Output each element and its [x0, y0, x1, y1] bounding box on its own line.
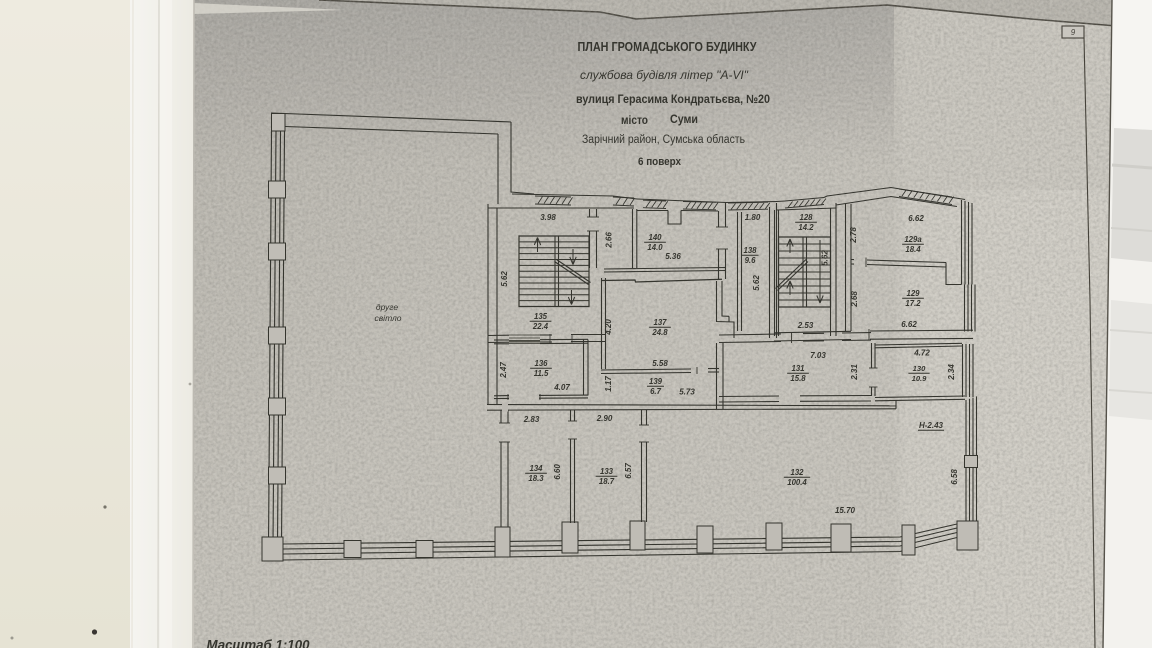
svg-text:2.68: 2.68 — [850, 291, 859, 308]
svg-text:24.8: 24.8 — [651, 328, 668, 337]
svg-text:22.4: 22.4 — [532, 322, 549, 331]
svg-text:133: 133 — [600, 467, 614, 476]
svg-text:100.4: 100.4 — [787, 478, 807, 487]
svg-text:Суми: Суми — [670, 112, 698, 126]
svg-text:5.73: 5.73 — [679, 388, 695, 397]
svg-text:139: 139 — [649, 377, 663, 386]
svg-text:1.80: 1.80 — [745, 213, 761, 222]
svg-text:службова будівля літер "А-VI": службова будівля літер "А-VI" — [580, 68, 749, 82]
svg-text:Зарічний район, Сумська област: Зарічний район, Сумська область — [582, 134, 745, 146]
svg-text:1.17: 1.17 — [604, 376, 613, 392]
svg-text:137: 137 — [653, 318, 667, 327]
svg-text:15.8: 15.8 — [790, 374, 806, 383]
svg-text:6.62: 6.62 — [901, 320, 917, 329]
svg-text:18.3: 18.3 — [528, 474, 544, 483]
svg-text:4.20: 4.20 — [604, 319, 613, 336]
svg-text:18.7: 18.7 — [599, 477, 615, 486]
svg-text:6.7: 6.7 — [650, 387, 662, 396]
svg-text:світло: світло — [375, 313, 402, 323]
svg-text:місто: місто — [621, 115, 648, 127]
svg-text:4.72: 4.72 — [913, 349, 930, 358]
svg-text:11.5: 11.5 — [534, 369, 549, 378]
svg-text:Масштаб 1:100: Масштаб 1:100 — [207, 638, 310, 648]
svg-text:5.36: 5.36 — [665, 252, 681, 261]
svg-text:4.07: 4.07 — [553, 383, 570, 392]
svg-text:136: 136 — [534, 359, 548, 368]
svg-text:вулиця Герасима Кондратьєва,: вулиця Герасима Кондратьєва, №20 — [576, 92, 770, 106]
svg-text:5.58: 5.58 — [652, 359, 668, 368]
svg-text:132: 132 — [790, 468, 804, 477]
svg-text:15.70: 15.70 — [835, 506, 856, 515]
svg-text:2.78: 2.78 — [849, 227, 858, 244]
svg-text:134: 134 — [529, 464, 543, 473]
svg-text:9: 9 — [1071, 28, 1076, 37]
svg-text:9.6: 9.6 — [745, 256, 757, 265]
svg-text:14.2: 14.2 — [798, 223, 814, 232]
svg-text:2.66: 2.66 — [605, 232, 614, 249]
svg-text:6.57: 6.57 — [624, 463, 633, 479]
svg-text:130: 130 — [913, 364, 926, 373]
svg-text:5.62: 5.62 — [752, 275, 761, 291]
svg-text:5.62: 5.62 — [821, 250, 830, 266]
svg-text:5.62: 5.62 — [500, 271, 509, 287]
svg-text:129: 129 — [906, 289, 920, 298]
svg-text:2.31: 2.31 — [850, 364, 859, 381]
svg-text:ПЛАН ГРОМАДСЬКОГО БУДИНКУ: ПЛАН ГРОМАДСЬКОГО БУДИНКУ — [578, 40, 757, 54]
svg-text:2.90: 2.90 — [596, 414, 613, 423]
svg-text:6.60: 6.60 — [553, 464, 562, 480]
svg-text:3.98: 3.98 — [540, 213, 556, 222]
svg-text:2.34: 2.34 — [947, 364, 956, 381]
svg-text:10.9: 10.9 — [912, 374, 928, 383]
svg-text:14.0: 14.0 — [647, 243, 663, 252]
svg-text:2.83: 2.83 — [523, 415, 540, 424]
svg-text:135: 135 — [534, 312, 548, 321]
svg-text:6.58: 6.58 — [950, 469, 959, 485]
svg-text:6 поверх: 6 поверх — [638, 156, 682, 168]
svg-text:друге: друге — [376, 302, 398, 312]
svg-text:17.2: 17.2 — [905, 299, 921, 308]
svg-text:140: 140 — [648, 233, 662, 242]
svg-text:131: 131 — [791, 364, 804, 373]
svg-text:128: 128 — [799, 213, 813, 222]
svg-text:129а: 129а — [904, 235, 922, 244]
svg-text:18.4: 18.4 — [905, 245, 921, 254]
svg-text:2.47: 2.47 — [499, 362, 508, 379]
svg-text:2.53: 2.53 — [797, 321, 814, 330]
svg-text:138: 138 — [743, 246, 757, 255]
svg-text:7.03: 7.03 — [810, 351, 826, 360]
svg-text:Н-2.43: Н-2.43 — [919, 421, 944, 430]
svg-text:6.62: 6.62 — [908, 214, 924, 223]
